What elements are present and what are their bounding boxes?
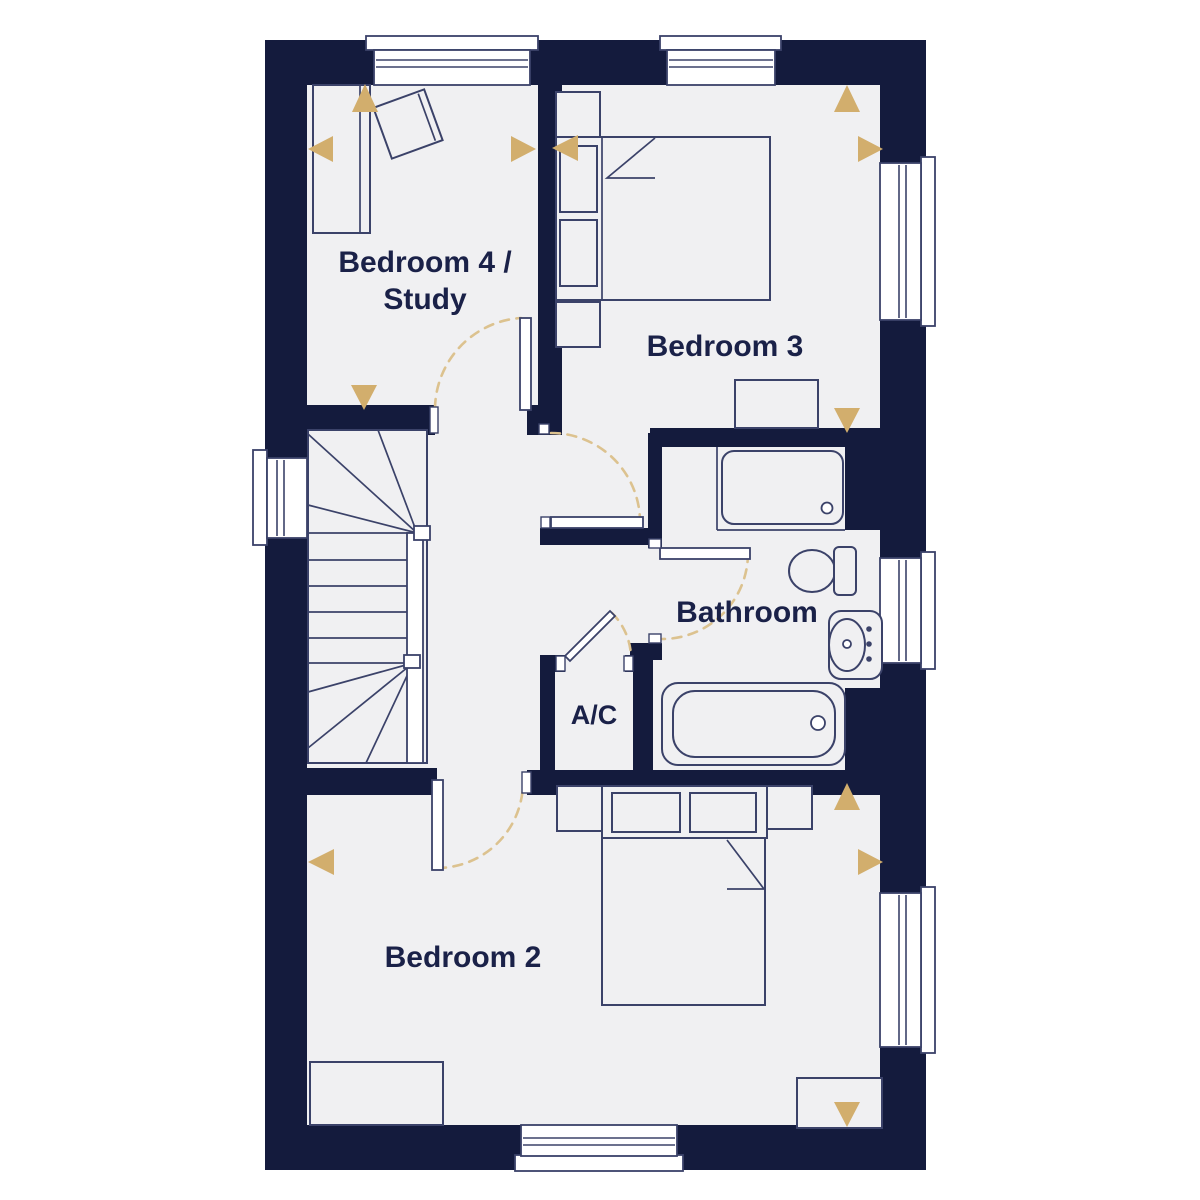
room-label-airing-cupboard: A/C [571,700,618,730]
bath-icon [662,683,845,765]
wall-shower-recess-block [845,447,880,530]
floor-plan: Bedroom 4 / Study Bedroom 3 Bathroom A/C… [0,0,1200,1200]
stair-newel-mid [404,655,420,668]
wall-outer-left [265,40,307,1170]
pillow-icon [560,220,597,286]
double-bed-icon [602,786,767,1005]
shower-drain [822,503,833,514]
window-bedroom4-top-icon [366,36,538,85]
stair-handrail [407,533,423,763]
wall-airing-cupboard-left [540,655,555,770]
window-bedroom2-right-icon [880,887,935,1053]
shower-icon [717,447,845,530]
toilet-icon [789,547,856,595]
door-jamb [430,407,438,433]
bath-tap [811,716,825,730]
wall-bath-stub [845,688,880,770]
floor-plan-page: Bedroom 4 / Study Bedroom 3 Bathroom A/C… [0,0,1200,1200]
door-leaf [432,780,443,870]
sink-icon [829,611,882,679]
door-jamb [539,424,549,434]
room-label-bedroom4-line2: Study [383,283,467,316]
door-jamb [556,656,565,671]
bedside-table-icon [557,786,602,831]
wall-bathroom-left-upper [648,433,662,548]
room-label-bedroom4-line1: Bedroom 4 / [338,246,512,279]
wall-outer-top [265,40,926,85]
room-label-bedroom3: Bedroom 3 [647,330,804,363]
pillow-icon [690,793,756,832]
door-jamb [624,656,633,671]
window-stairs-left-icon [253,450,307,545]
pillow-icon [560,146,597,212]
door-jamb [649,634,661,643]
stair-newel-top [414,526,430,540]
room-label-bathroom: Bathroom [676,596,818,629]
chest-of-drawers-icon [310,1062,443,1125]
window-bedroom2-bottom-icon [515,1125,683,1171]
window-bathroom-right-icon [880,552,935,669]
window-bedroom3-right-icon [880,157,935,326]
door-leaf [660,548,750,559]
staircase-icon [308,430,430,763]
double-bed-icon [556,137,770,300]
pillow-icon [612,793,680,832]
door-jamb [649,539,661,548]
door-jamb [541,517,550,528]
bedside-table-icon [556,92,600,137]
wall-bedroom3-door-lower [540,528,650,545]
bedside-table-icon [767,786,812,829]
room-label-bedroom2: Bedroom 2 [385,941,542,974]
door-jamb [522,772,531,793]
chest-of-drawers-icon [735,380,818,428]
window-bedroom3-top-icon [660,36,781,85]
bedside-table-icon [556,302,600,347]
wall-bedroom2-top-left [307,768,437,795]
door-leaf [520,318,531,410]
door-leaf [551,517,643,528]
